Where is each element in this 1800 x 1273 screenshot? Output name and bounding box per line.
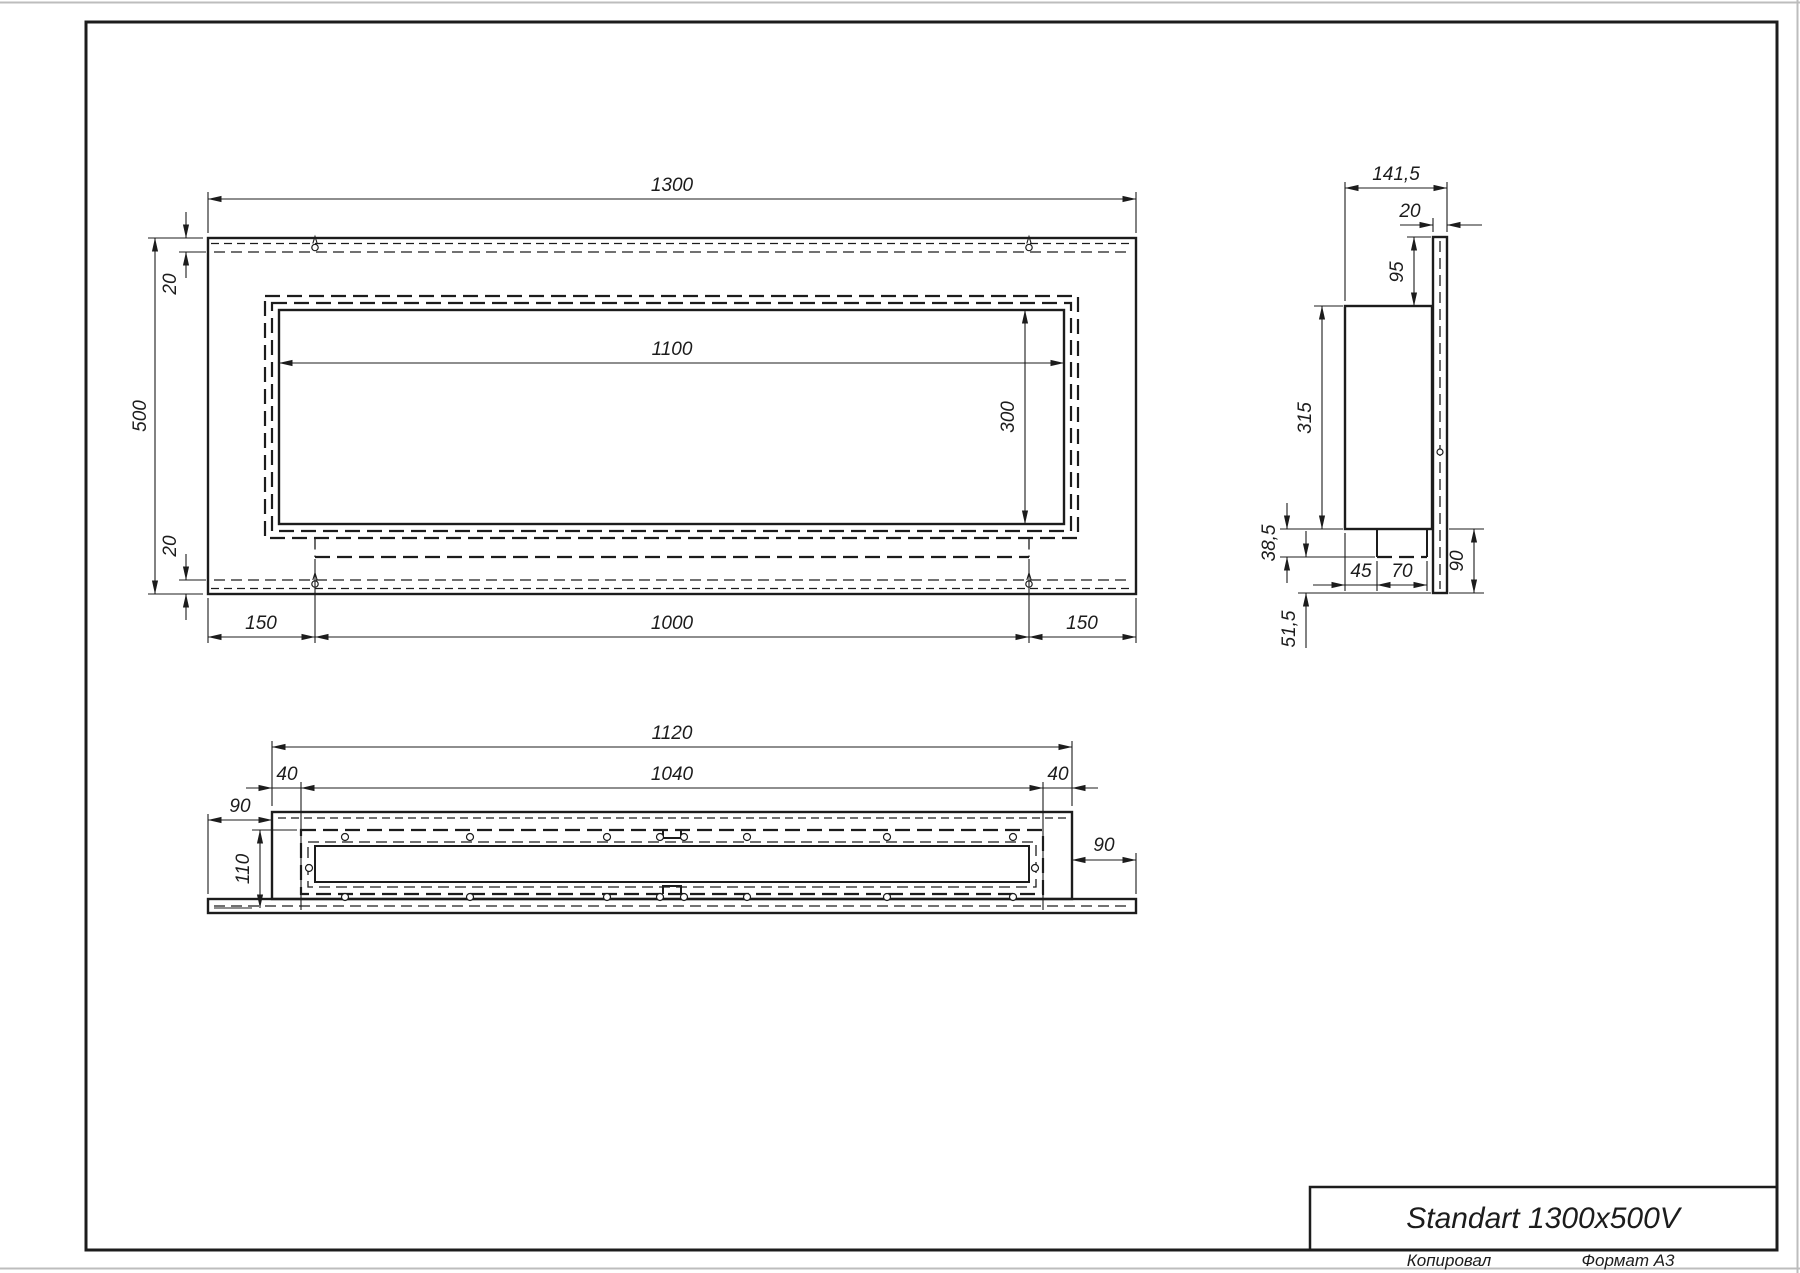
dim-front-overall-width: 1300 (651, 175, 694, 196)
side-box (1345, 306, 1432, 529)
dim-front-right-span: 150 (1066, 613, 1098, 634)
frame-border (86, 22, 1777, 1250)
dim-front-top-inset: 20 (160, 273, 181, 296)
drawing-sheet: 1300 500 20 20 1100 300 150 1000 150 (0, 0, 1800, 1273)
front-view: 1300 500 20 20 1100 300 150 1000 150 (130, 175, 1136, 643)
product-name: Standart 1300x500V (1406, 1202, 1683, 1235)
dim-front-overall-height: 500 (130, 400, 151, 432)
bottom-opening-hidden (301, 830, 1043, 894)
dim-side-box-height: 315 (1295, 402, 1316, 434)
dim-side-overall-depth: 141,5 (1372, 164, 1420, 185)
dim-side-tray-drop: 38,5 (1259, 524, 1280, 561)
front-outer-flange (208, 238, 1136, 594)
copied-by-label: Копировал (1407, 1251, 1492, 1270)
sheet-frame (86, 22, 1777, 1250)
dim-bottom-right-overhang: 90 (1093, 835, 1115, 856)
dim-side-bottom-overhang: 90 (1447, 550, 1468, 572)
bottom-holes (306, 834, 1039, 901)
dim-side-flange-thickness: 20 (1398, 201, 1421, 222)
dim-side-tray-offset: 45 (1350, 561, 1372, 582)
dim-front-opening-width: 1100 (652, 339, 693, 360)
dim-side-bottom-margin: 51,5 (1279, 610, 1300, 647)
dim-bottom-left-overhang: 90 (229, 796, 251, 817)
dim-bottom-opening-width: 1040 (651, 764, 694, 785)
front-hidden-frame-inner (272, 303, 1071, 531)
drawing-canvas: 1300 500 20 20 1100 300 150 1000 150 (0, 0, 1800, 1273)
bottom-view: 1120 40 1040 40 90 110 90 (208, 723, 1136, 913)
dim-bottom-box-width: 1120 (652, 723, 693, 744)
dim-front-left-span: 150 (245, 613, 277, 634)
dim-bottom-left-wall: 40 (276, 764, 298, 785)
side-view: 141,5 20 95 315 38,5 51,5 90 (1259, 164, 1484, 648)
dim-front-bottom-inset: 20 (160, 535, 181, 558)
bottom-inner-tray (315, 846, 1029, 882)
dim-side-top-overhang: 95 (1387, 261, 1408, 283)
title-block: Standart 1300x500V Копировал Формат А3 (1310, 1187, 1777, 1270)
dim-bottom-opening-depth: 110 (233, 853, 254, 884)
dim-front-center-span: 1000 (651, 613, 694, 634)
dim-side-tray-width: 70 (1391, 561, 1413, 582)
dim-front-opening-height: 300 (998, 401, 1019, 433)
front-hidden-frame-outer (265, 296, 1078, 538)
dim-bottom-right-wall: 40 (1047, 764, 1069, 785)
side-hole (1437, 449, 1443, 455)
format-label: Формат А3 (1581, 1251, 1675, 1270)
